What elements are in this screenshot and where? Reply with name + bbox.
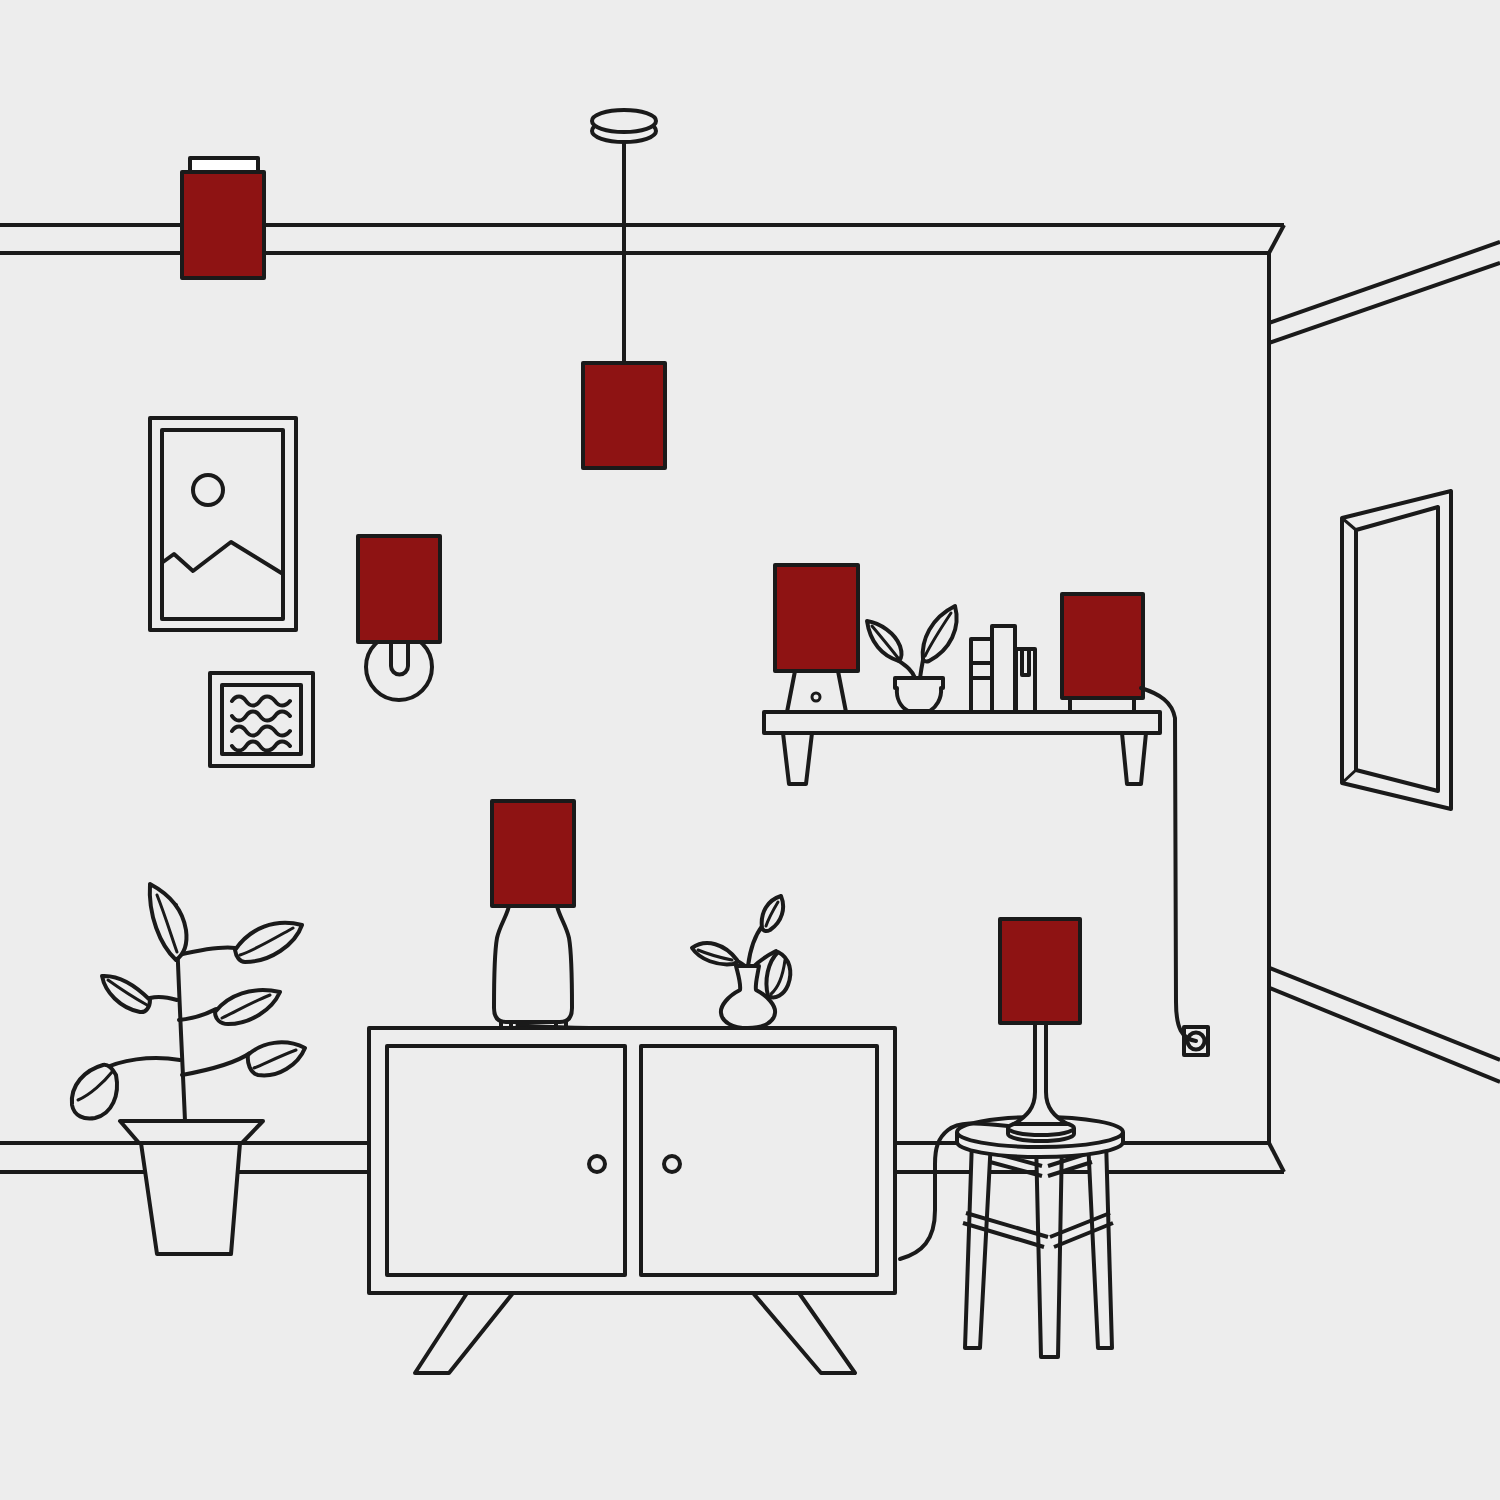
book — [1016, 649, 1035, 712]
side-table — [957, 1117, 1123, 1357]
ceiling-rose-top — [592, 110, 656, 132]
book — [992, 626, 1015, 712]
framed-picture-mountains — [150, 418, 296, 630]
bell-lamp-shade — [492, 801, 574, 906]
sconce-stem — [391, 640, 408, 675]
shelf-board — [764, 712, 1160, 733]
sideboard-door-right — [641, 1046, 877, 1275]
ceiling-lamp-shade — [182, 172, 264, 278]
living-room-illustration — [0, 0, 1500, 1500]
plant-pot-rim — [120, 1121, 263, 1143]
scene-canvas — [0, 0, 1500, 1500]
book — [971, 639, 992, 712]
plant-pot-body — [141, 1143, 240, 1254]
shelf-plant-pot — [895, 678, 943, 711]
shelf-leg — [1122, 733, 1146, 784]
picture-inner-frame — [162, 430, 283, 619]
wall-sconce-lamp — [358, 536, 440, 700]
shelf-leg — [783, 733, 812, 784]
shelf-lamp-shade — [775, 565, 858, 671]
bell-lamp-body — [494, 906, 572, 1022]
wall-mirror — [1342, 491, 1451, 809]
stick-lamp-shade — [1000, 919, 1080, 1023]
pendant-lamp-shade — [583, 363, 665, 468]
sconce-lamp-shade — [358, 536, 440, 642]
shelf-box-lamp-shade — [1062, 594, 1143, 698]
framed-art-waves — [210, 673, 313, 766]
ceiling-mounted-lamp — [182, 158, 264, 278]
mirror-inner-frame — [1356, 507, 1438, 791]
shelf-lamp-base — [787, 671, 846, 712]
box-lamp-plinth — [1070, 698, 1134, 712]
